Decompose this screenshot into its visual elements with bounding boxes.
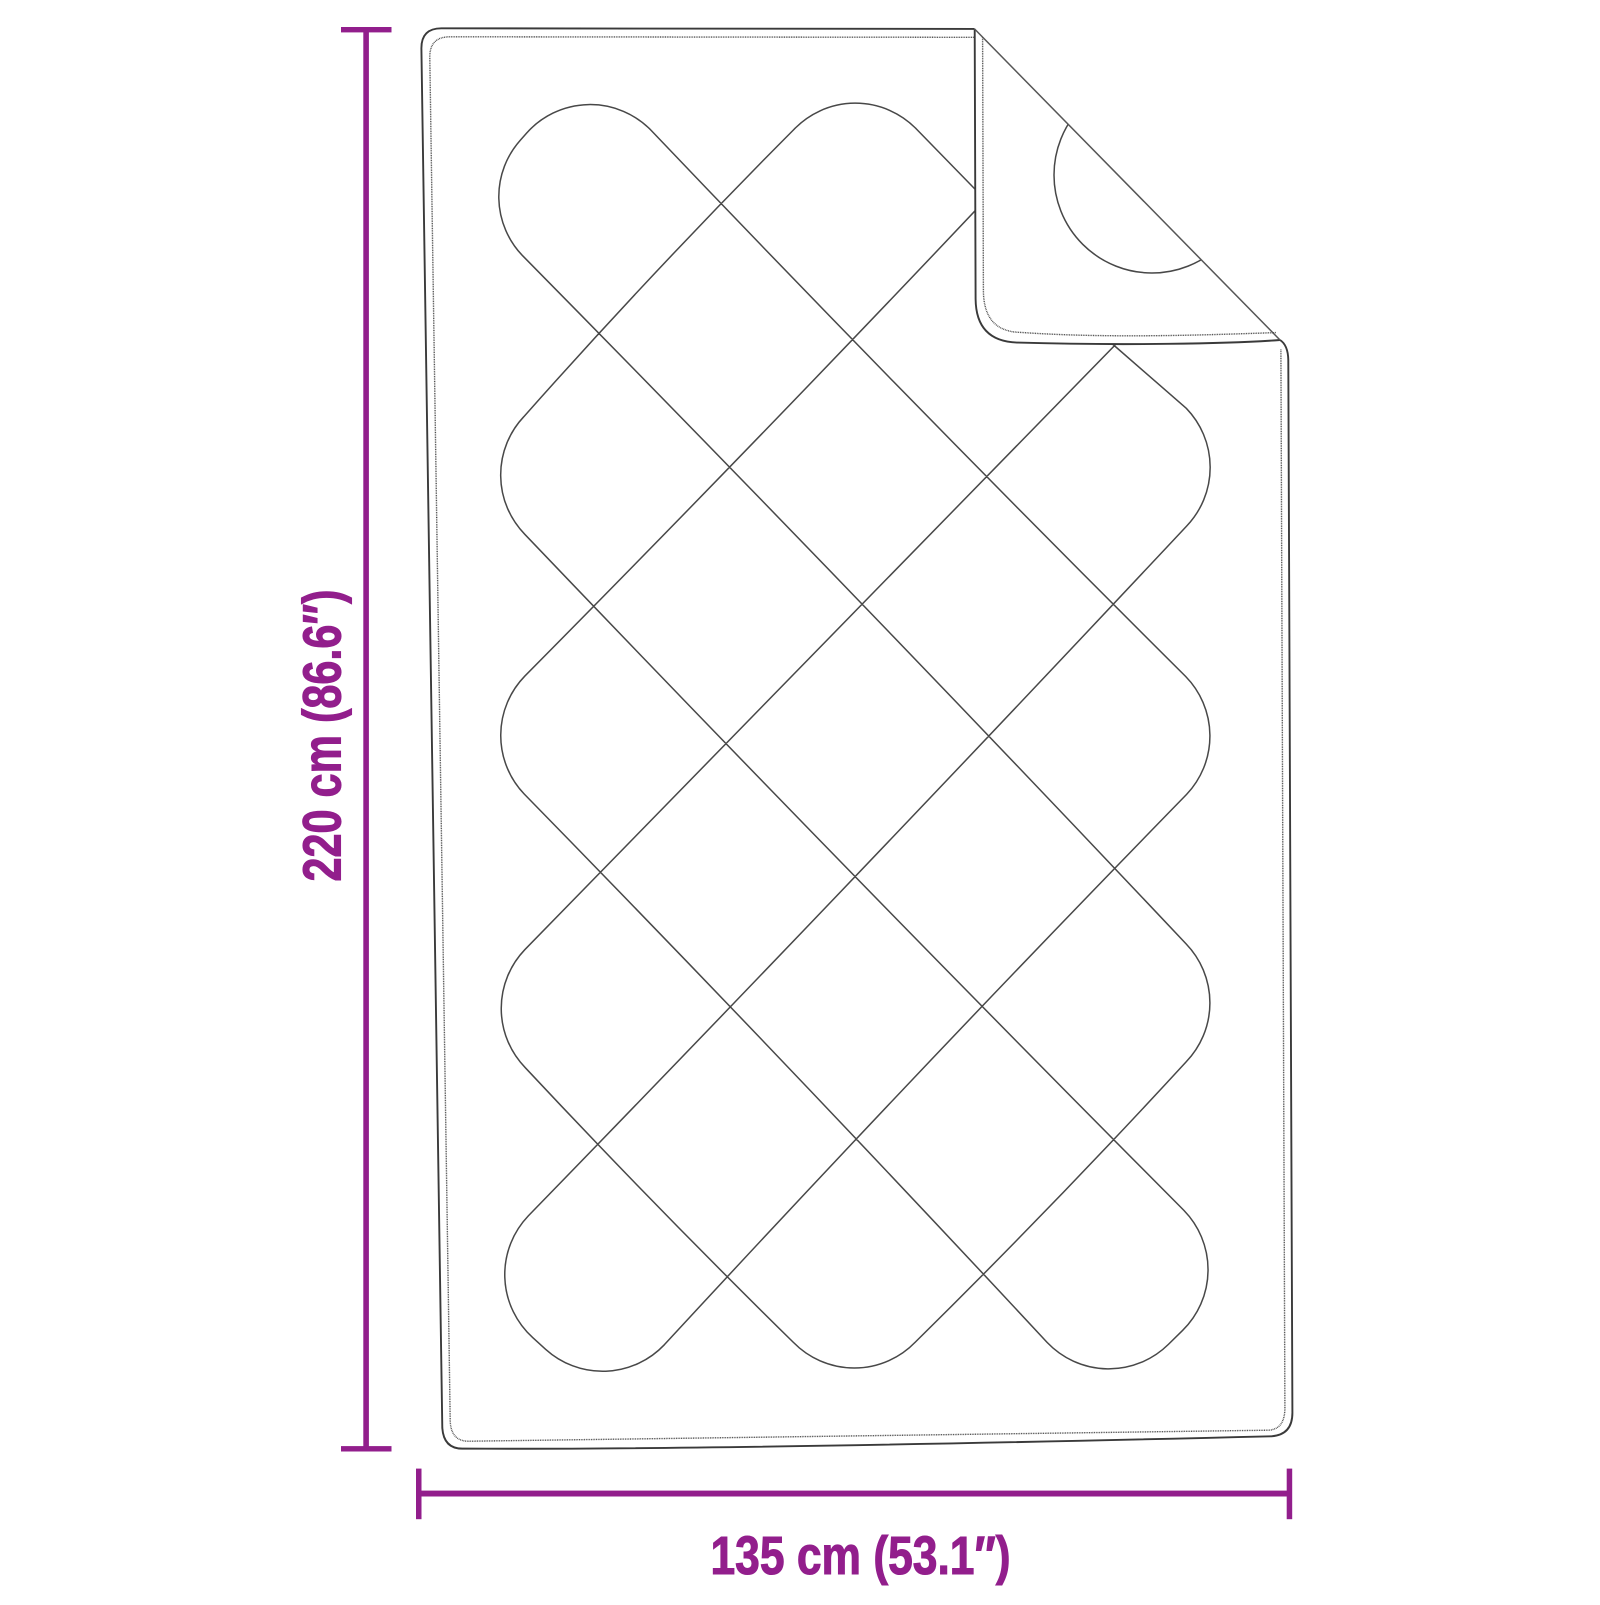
svg-text:220 cm (86.6″): 220 cm (86.6″) (293, 590, 353, 882)
svg-text:135 cm (53.1″): 135 cm (53.1″) (711, 1526, 1011, 1586)
